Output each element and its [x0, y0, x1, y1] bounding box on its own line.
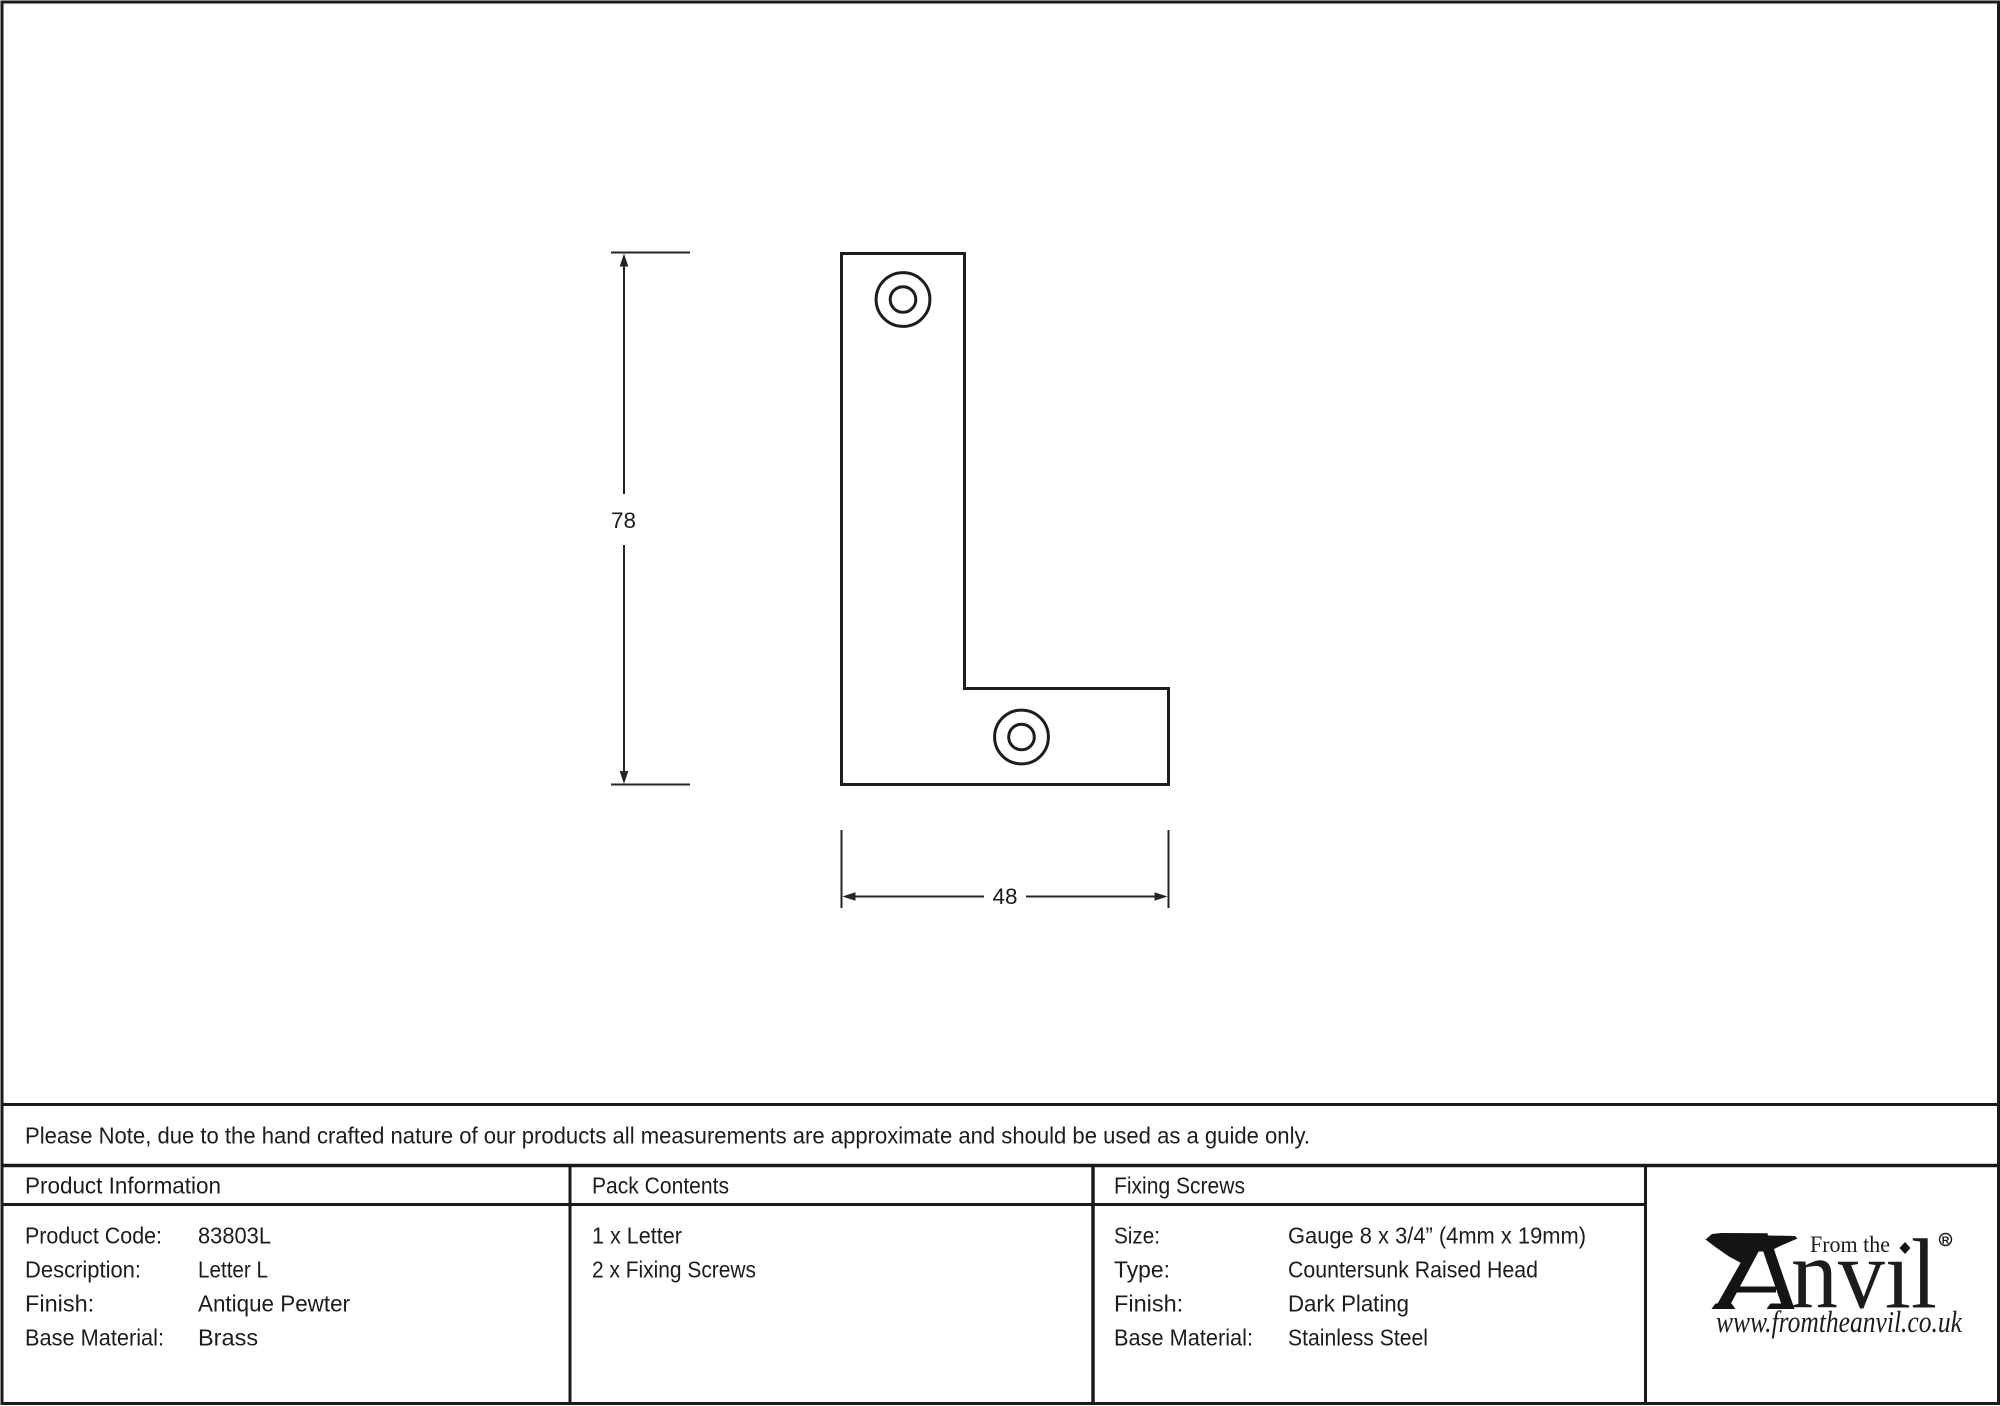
svg-text:Size:: Size:	[1114, 1223, 1160, 1249]
svg-text:Antique Pewter: Antique Pewter	[198, 1291, 350, 1317]
svg-text:Please Note, due to the hand c: Please Note, due to the hand crafted nat…	[25, 1123, 1310, 1149]
svg-text:R: R	[1942, 1235, 1950, 1247]
svg-text:Product Code:: Product Code:	[25, 1223, 162, 1249]
svg-text:48: 48	[992, 884, 1017, 909]
svg-text:Brass: Brass	[198, 1325, 258, 1351]
svg-text:www.fromtheanvil.co.uk: www.fromtheanvil.co.uk	[1716, 1304, 1963, 1339]
svg-text:Pack Contents: Pack Contents	[592, 1173, 729, 1199]
svg-text:2 x Fixing Screws: 2 x Fixing Screws	[592, 1257, 756, 1283]
svg-text:Finish:: Finish:	[1114, 1291, 1183, 1317]
svg-text:Countersunk Raised Head: Countersunk Raised Head	[1288, 1257, 1538, 1283]
svg-text:Description:: Description:	[25, 1257, 141, 1283]
svg-text:Letter L: Letter L	[198, 1257, 268, 1283]
svg-text:Type:: Type:	[1114, 1257, 1170, 1283]
svg-text:Base Material:: Base Material:	[25, 1325, 164, 1351]
svg-text:Dark Plating: Dark Plating	[1288, 1291, 1409, 1317]
svg-text:83803L: 83803L	[198, 1223, 271, 1249]
svg-text:Fixing Screws: Fixing Screws	[1114, 1173, 1245, 1199]
svg-text:Finish:: Finish:	[25, 1291, 94, 1317]
svg-text:Stainless Steel: Stainless Steel	[1288, 1325, 1428, 1351]
svg-text:Product Information: Product Information	[25, 1173, 221, 1199]
svg-text:Base Material:: Base Material:	[1114, 1325, 1253, 1351]
svg-text:Gauge 8 x 3/4” (4mm x 19mm): Gauge 8 x 3/4” (4mm x 19mm)	[1288, 1223, 1586, 1249]
svg-text:1 x Letter: 1 x Letter	[592, 1223, 682, 1249]
svg-text:78: 78	[611, 508, 636, 533]
svg-text:From the: From the	[1810, 1232, 1890, 1257]
